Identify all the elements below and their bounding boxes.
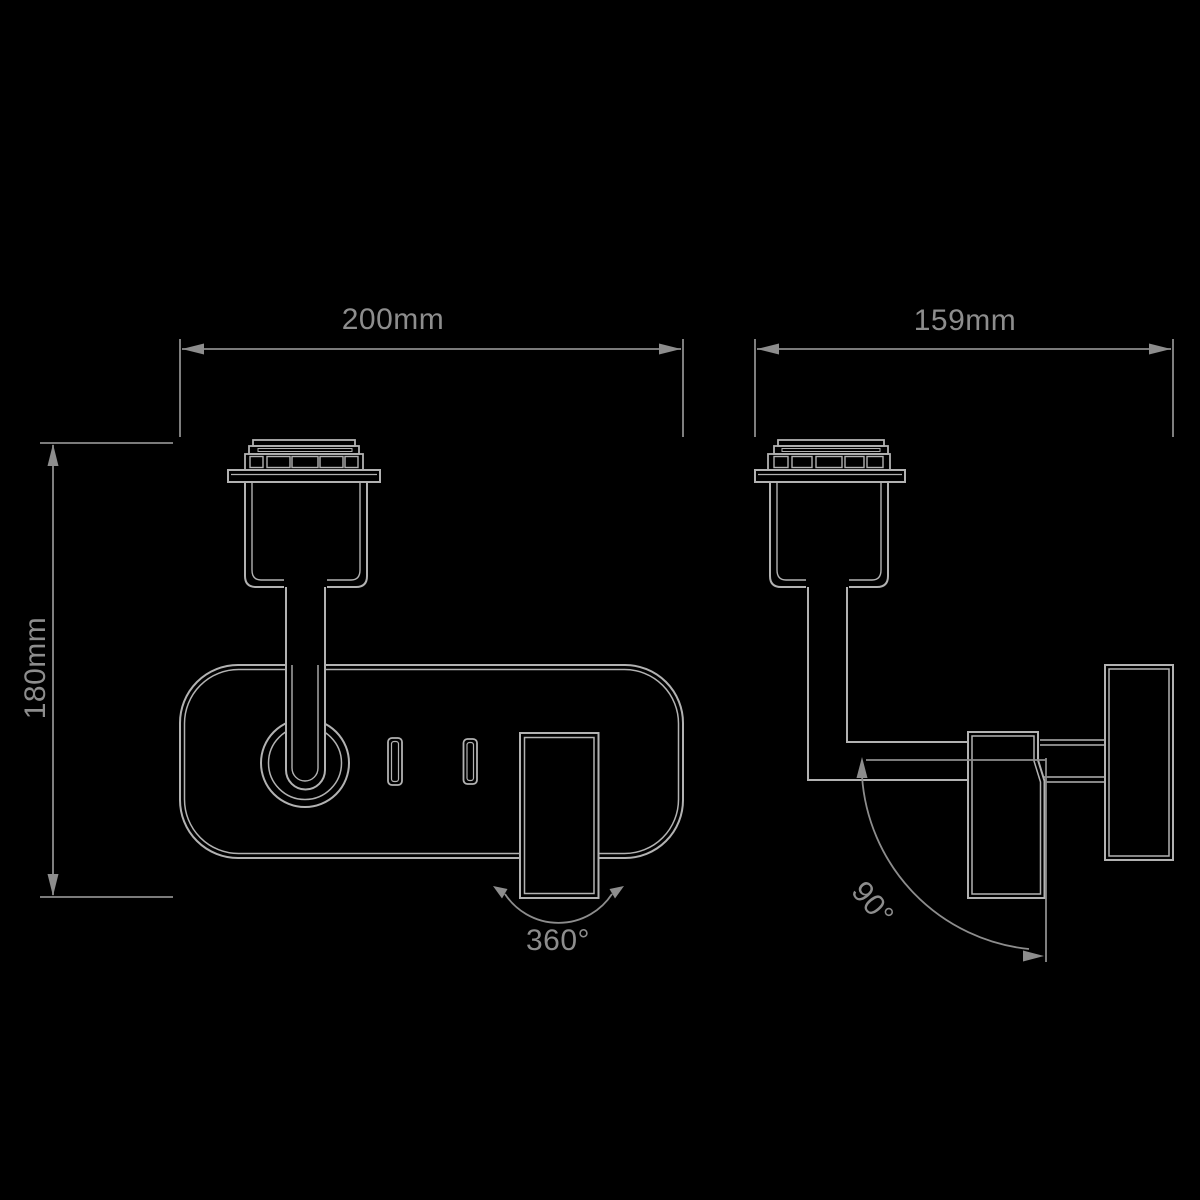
side-top-plate-lower: [774, 446, 888, 454]
front-slot-left: [388, 738, 402, 785]
front-spot-head-outer: [520, 733, 599, 898]
front-slot-right: [464, 739, 478, 784]
dimension-label-head-rotation: 360°: [526, 924, 590, 958]
side-top-plate-slot: [782, 449, 880, 452]
dimension-front-height: [40, 443, 173, 897]
side-terminal-segments: [774, 457, 883, 468]
front-backplate-inner: [185, 670, 679, 854]
line-art: [0, 0, 1200, 1200]
front-top-plate-upper: [253, 440, 355, 446]
dimension-label-front-width: 200mm: [342, 303, 445, 337]
side-flange: [755, 470, 905, 482]
side-top-plate-upper: [778, 440, 884, 446]
side-bracket: [1040, 740, 1105, 782]
front-flange: [228, 470, 380, 482]
side-cup-inner: [777, 482, 881, 580]
dimension-label-side-depth: 159mm: [914, 304, 1017, 338]
front-top-plate-slot: [258, 449, 352, 452]
dimension-label-front-height: 180mm: [19, 617, 53, 720]
side-arm: [808, 587, 970, 780]
side-cup-outer: [770, 482, 888, 587]
side-view: [755, 440, 1173, 898]
front-view: [180, 440, 683, 898]
front-cup-inner: [252, 482, 360, 580]
front-top-plate-lower: [249, 446, 359, 454]
side-wall-plate-inner: [1109, 669, 1169, 856]
technical-drawing-canvas: 200mm 180mm 159mm 360° 90°: [0, 0, 1200, 1200]
front-cup-outer: [245, 482, 367, 587]
front-backplate-outer: [180, 665, 683, 858]
dimension-side-depth: [755, 339, 1173, 437]
dimension-front-width: [180, 339, 683, 437]
front-terminal-segments: [250, 457, 358, 468]
side-spot-head-outer: [968, 732, 1045, 898]
side-wall-plate-outer: [1105, 665, 1173, 860]
